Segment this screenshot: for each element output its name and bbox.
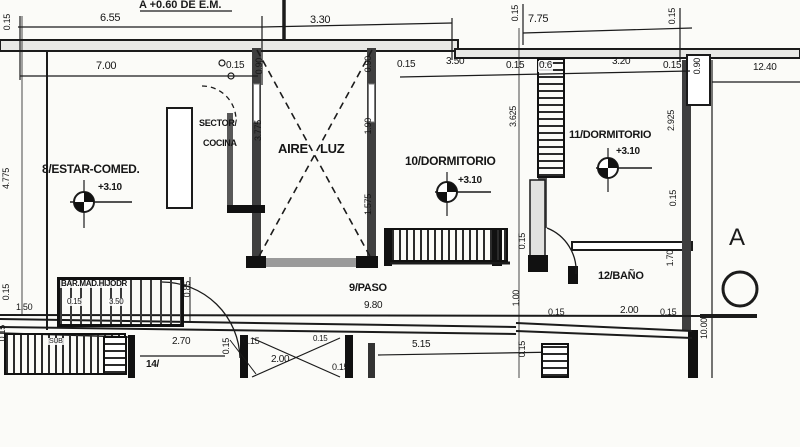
dimension-label: 0.15 <box>663 61 681 72</box>
dimension-label: 0.15 <box>3 14 12 30</box>
dimension-label: 10.00 <box>700 318 709 339</box>
dimension-label: 7.75 <box>528 14 548 26</box>
dimension-label: 0.15 <box>66 298 82 306</box>
dimension-label: 0.85 <box>183 281 192 297</box>
dimension-label: 3.50 <box>446 57 464 68</box>
dimension-label: 0.15 <box>548 308 564 317</box>
dimension-label: 0.15 <box>243 337 259 346</box>
dimension-label: 3.775 <box>254 120 263 141</box>
room-label: 14/ <box>146 360 159 371</box>
dimension-label: 2.00 <box>620 306 638 317</box>
floor-plan: A +0.60 DE E.M. A 6.553.307.757.000.150.… <box>0 0 800 447</box>
dimension-label: 2.925 <box>667 110 676 131</box>
room-label: 8/ESTAR-COMED. <box>42 163 140 176</box>
dimension-label: 3.20 <box>612 57 630 68</box>
dimension-label: 1.90 <box>364 118 373 134</box>
dimension-label: 2.00 <box>271 355 289 366</box>
dimension-label: 3.625 <box>509 106 518 127</box>
dimension-label: 0.15 <box>660 308 676 317</box>
dimension-label: 1.50 <box>16 303 32 312</box>
fixture-label: BAR.MAD.HIJODR <box>60 280 128 288</box>
dimension-label: 0.15 <box>518 341 527 357</box>
dimension-label: +3.10 <box>98 183 122 194</box>
room-label: 11/DORMITORIO <box>569 130 651 142</box>
dimension-label: +3.10 <box>616 147 640 158</box>
dimension-label: 7.00 <box>96 61 116 73</box>
room-label: COCINA <box>203 139 237 148</box>
dimension-label: 0.15 <box>506 61 524 72</box>
dimension-label: 0.15 <box>668 8 677 24</box>
dimension-label: 0.15 <box>313 335 327 343</box>
dimension-label: 0.15 <box>226 61 244 72</box>
dimension-label: 0.90 <box>364 56 373 72</box>
room-label: 9/PASO <box>349 283 387 295</box>
dimension-label: 6.55 <box>100 13 120 25</box>
room-label: 12/BAÑO <box>598 271 644 283</box>
room-label: 10/DORMITORIO <box>405 155 496 168</box>
dimension-label: 5.15 <box>412 340 430 351</box>
dimension-label: 12.40 <box>753 63 777 74</box>
room-label: SECTOR/ <box>199 119 237 128</box>
dimension-label: 0.15 <box>0 325 7 341</box>
dimension-label: 0.6 <box>538 61 553 72</box>
dimension-label: 0.15 <box>2 284 11 300</box>
dimension-label: 3.50 <box>108 298 124 306</box>
note-label: SUB <box>48 338 64 345</box>
dimension-label: 9.80 <box>364 301 382 312</box>
dimension-label: +3.10 <box>458 176 482 187</box>
dimension-label: 0.90 <box>255 58 264 74</box>
dimension-label: 3.30 <box>310 15 330 27</box>
dimension-label: 0.15 <box>511 5 520 21</box>
dimension-label: 2.70 <box>172 337 190 348</box>
dimension-label: 4.775 <box>2 168 11 189</box>
dimension-label: 1.70 <box>666 250 675 266</box>
room-label: AIRE <box>278 142 308 156</box>
dimension-label: 0.15 <box>332 363 348 372</box>
dimension-label: 0.15 <box>518 233 527 249</box>
dimension-label: 1.575 <box>364 194 373 215</box>
labels-layer: 6.553.307.757.000.150.153.500.150.63.200… <box>0 0 800 447</box>
room-label: LUZ <box>320 142 344 156</box>
dimension-label: 0.90 <box>692 58 703 74</box>
dimension-label: 0.15 <box>397 60 415 71</box>
dimension-label: 0.15 <box>669 190 678 206</box>
dimension-label: 1.00 <box>512 290 521 306</box>
dimension-label: 0.15 <box>222 338 231 354</box>
